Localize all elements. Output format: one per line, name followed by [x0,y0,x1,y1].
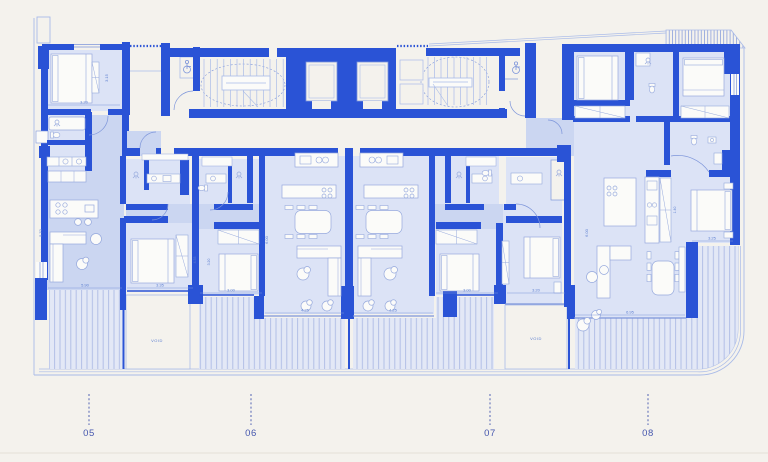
svg-text:4.35: 4.35 [193,257,197,264]
svg-text:6.00: 6.00 [584,228,589,237]
svg-text:6.00: 6.00 [264,235,269,244]
svg-text:3.00: 3.00 [227,288,236,293]
svg-text:VOID: VOID [151,338,163,343]
svg-text:3.20: 3.20 [532,288,541,293]
svg-text:08: 08 [642,428,654,439]
svg-text:4.25: 4.25 [301,308,310,313]
svg-text:3.25: 3.25 [708,236,717,241]
svg-text:06: 06 [245,428,257,439]
svg-text:3.35: 3.35 [156,283,165,288]
svg-text:3.20: 3.20 [207,259,211,266]
svg-text:07: 07 [484,428,496,439]
svg-text:1.40: 1.40 [673,207,677,214]
svg-text:3.20: 3.20 [80,100,89,105]
svg-text:3.00: 3.00 [463,288,472,293]
svg-text:VOID: VOID [530,336,542,341]
svg-text:3.15: 3.15 [104,73,109,82]
svg-text:5.70: 5.70 [38,228,43,237]
svg-text:6.95: 6.95 [626,310,635,315]
svg-text:05: 05 [83,428,95,439]
svg-text:5.90: 5.90 [81,283,90,288]
svg-text:4.25: 4.25 [389,308,398,313]
